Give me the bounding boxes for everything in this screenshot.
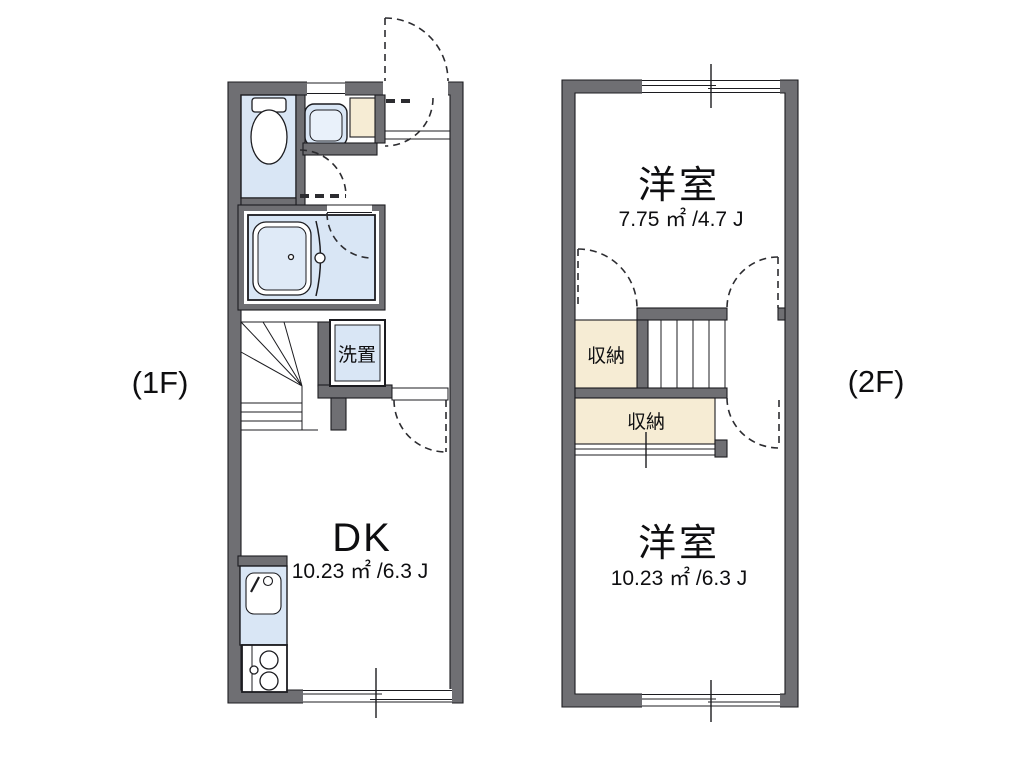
floor-2f-tag: (2F) bbox=[848, 364, 905, 399]
entrance-door-arc bbox=[385, 18, 448, 81]
window-top-2f bbox=[642, 64, 780, 108]
bath-drain bbox=[315, 253, 325, 263]
dk-room-label: DK bbox=[332, 516, 392, 560]
south-room-area: 10.23 ㎡ /6.3 J bbox=[611, 566, 748, 590]
bath-faucet-dot bbox=[289, 255, 294, 260]
washbasin bbox=[305, 104, 347, 146]
stairs-1f bbox=[241, 322, 318, 430]
mid-wall-center bbox=[637, 308, 727, 320]
north-room-left-door-arc bbox=[578, 249, 637, 308]
floorplan-canvas: 洗置 DK 10.23 ㎡ /6.3 J bbox=[0, 0, 1016, 772]
kitchen-sink-unit bbox=[240, 566, 287, 645]
north-room-label: 洋室 bbox=[638, 165, 720, 207]
dk-room-area: 10.23 ㎡ /6.3 J bbox=[292, 559, 429, 583]
mid-wall-lower bbox=[575, 388, 727, 398]
bathtub bbox=[253, 222, 311, 295]
dk-door-arc bbox=[392, 388, 448, 452]
water-heater bbox=[350, 98, 377, 137]
mid-wall-right-stub bbox=[778, 308, 785, 320]
window-bottom-1f bbox=[303, 668, 452, 718]
south-closet: 収納 bbox=[575, 398, 715, 468]
window-top-1f bbox=[307, 81, 345, 96]
hall-wall-jut bbox=[331, 398, 346, 430]
nook-entry-divider-wall bbox=[375, 95, 385, 143]
entry-step-edge bbox=[385, 131, 450, 139]
south-room-door-arc bbox=[727, 398, 779, 448]
entrance-opening bbox=[383, 81, 448, 96]
stove bbox=[242, 645, 287, 692]
toilet-door-arc bbox=[300, 150, 346, 196]
closet-stair-wall bbox=[637, 320, 648, 398]
south-closet-label: 収納 bbox=[627, 411, 665, 433]
floor-2f-plan: 収納 収納 洋室 7.75 ㎡ /4.7 J 洋室 10.23 ㎡ /6.3 J bbox=[562, 64, 798, 722]
north-closet-label: 収納 bbox=[587, 345, 625, 367]
floor-plan-image: 洗置 DK 10.23 ㎡ /6.3 J bbox=[0, 0, 1016, 772]
stairs-2f bbox=[661, 320, 725, 388]
laundry-space: 洗置 bbox=[330, 320, 385, 386]
south-room-label: 洋室 bbox=[638, 523, 720, 565]
closet-end-wall bbox=[715, 440, 727, 457]
floor-1f-tag: (1F) bbox=[132, 365, 189, 400]
toilet-fixture bbox=[251, 98, 287, 164]
kitchen-top-wall bbox=[238, 556, 287, 566]
north-room-right-door-arc bbox=[727, 257, 778, 308]
north-closet: 収納 bbox=[575, 320, 637, 388]
laundry-label: 洗置 bbox=[338, 344, 376, 366]
nook-bottom-wall bbox=[303, 143, 377, 155]
window-bottom-2f bbox=[642, 680, 780, 722]
floor-1f-plan: 洗置 DK 10.23 ㎡ /6.3 J bbox=[228, 18, 463, 718]
north-room-area: 7.75 ㎡ /4.7 J bbox=[619, 207, 744, 231]
